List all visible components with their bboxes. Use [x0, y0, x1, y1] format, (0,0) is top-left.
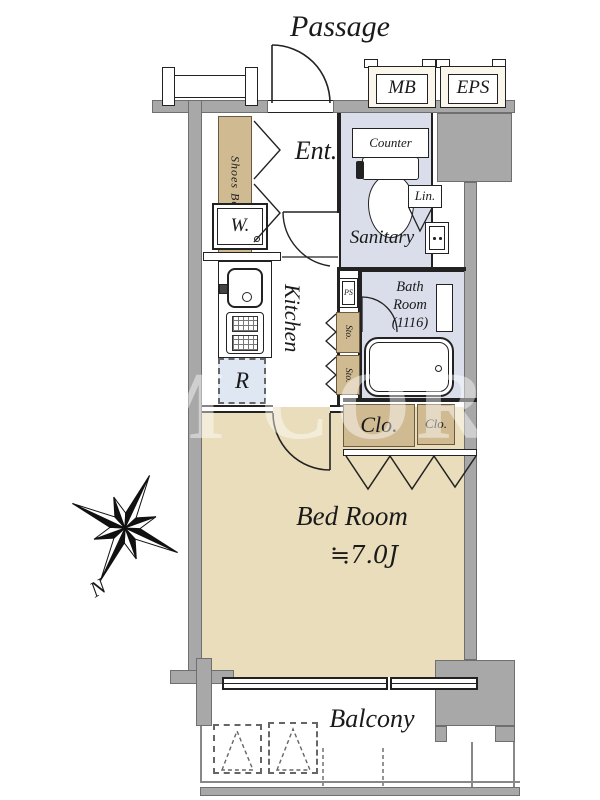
left-wall [188, 100, 202, 676]
washer-label: W. [212, 206, 268, 246]
closet-rail [343, 449, 477, 456]
bathroom-label-line2: Room [393, 296, 427, 314]
storage-upper: Sto. [336, 312, 360, 353]
pillar-top-right [437, 113, 512, 182]
pillar-drop-line-left [471, 742, 473, 787]
north-label: N [71, 561, 126, 616]
outdoor-unit-spot-left [213, 724, 262, 774]
eps-label: EPS [440, 70, 506, 106]
passage-window-bar [174, 75, 246, 98]
window-mid-line [392, 683, 476, 684]
balcony-label: Balcony [292, 700, 452, 738]
storage-lower-label: Sto. [337, 356, 359, 394]
entrance-door [272, 45, 330, 103]
bathroom-label-line3: (1116) [392, 314, 429, 332]
bathroom-label: Bath Room (1116) [368, 276, 452, 334]
right-wall [464, 182, 477, 660]
storage-folding-doors [326, 314, 336, 393]
stove-burner-top [232, 316, 258, 332]
bathtub [364, 337, 454, 397]
closet-large-label: Clo. [343, 406, 415, 445]
balcony-window-right [390, 677, 478, 690]
pillar-foot-right [495, 726, 515, 742]
kitchen-faucet [219, 284, 228, 294]
closet-small-label: Clo. [417, 406, 455, 443]
bedroom-size-label: ≒7.0J [252, 537, 476, 573]
mb-label: MB [368, 70, 436, 106]
window-mid-line [224, 683, 386, 684]
washer-shelf [203, 252, 281, 261]
ps-label: PS [339, 278, 358, 308]
storage-lower: Sto. [336, 355, 360, 395]
bedroom-name-label: Bed Room [240, 497, 464, 537]
counter-label: Counter [352, 130, 429, 156]
kitchen-stove [226, 312, 264, 354]
site-boundary-bar [200, 787, 520, 796]
toilet-flush-handle [356, 161, 364, 179]
passage-label: Passage [240, 5, 440, 47]
storage-upper-label: Sto. [337, 313, 359, 352]
bedroom-top-wall-left [202, 405, 273, 413]
kitchen-sink [227, 268, 263, 308]
bathroom-label-line1: Bath [396, 278, 423, 296]
balcony-left-line [200, 726, 202, 783]
linen-label: Lin. [408, 186, 442, 207]
balcony-cross-v [196, 658, 212, 726]
stove-burner-bottom [232, 335, 258, 351]
entrance-opening [268, 100, 333, 113]
bath-bottom-wall [343, 398, 477, 402]
passage-window-post-right [245, 67, 258, 106]
ent-label: Ent. [280, 134, 352, 168]
sanitary-label: Sanitary [330, 224, 434, 252]
toilet-tank [362, 157, 419, 180]
kitchen-label: Kitchen [272, 248, 312, 388]
balcony-window-left [222, 677, 388, 690]
refrigerator-label: R [218, 360, 266, 402]
sink-drain [242, 292, 252, 302]
cabinet-dot-right [439, 237, 442, 240]
bathtub-drain [435, 365, 442, 372]
pillar-drop-line-right [513, 742, 515, 787]
floor-plan: MB EPS Shoes Box Ent. W. Kitchen R Count… [0, 0, 600, 800]
